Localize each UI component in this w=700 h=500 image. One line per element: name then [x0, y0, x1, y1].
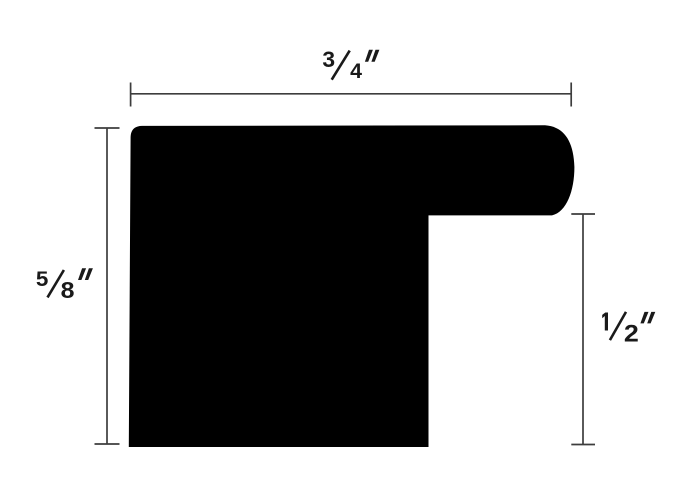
svg-text:4: 4	[350, 59, 362, 83]
svg-text:8: 8	[61, 278, 75, 304]
svg-text:2: 2	[624, 321, 639, 347]
svg-text:3: 3	[322, 47, 335, 72]
svg-text:5: 5	[36, 266, 48, 290]
